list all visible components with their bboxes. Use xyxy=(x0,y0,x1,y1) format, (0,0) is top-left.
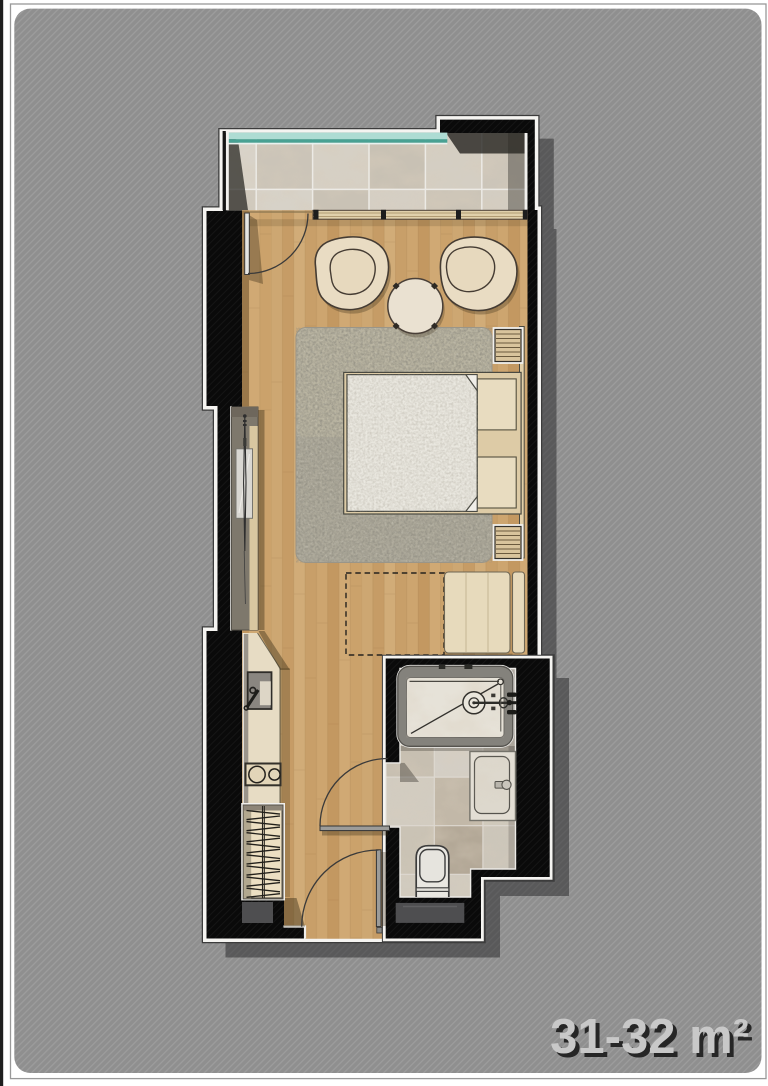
svg-text:31-32 m²: 31-32 m² xyxy=(550,1010,749,1064)
